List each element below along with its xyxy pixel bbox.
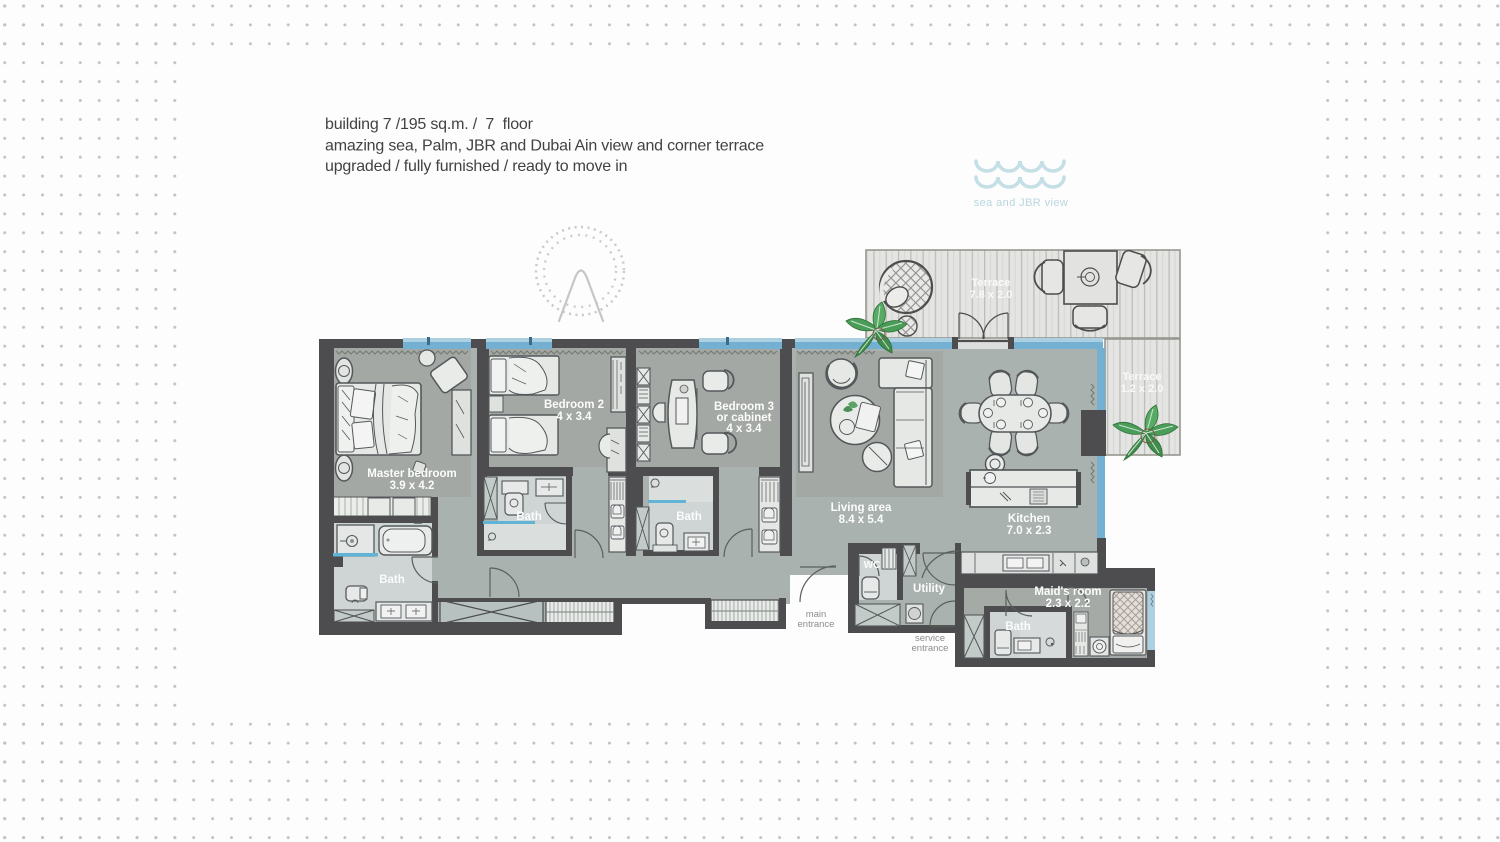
svg-text:upgraded / fully furnished / r: upgraded / fully furnished / ready to mo…	[325, 158, 627, 175]
svg-text:Terrace: Terrace	[972, 277, 1011, 289]
svg-text:Bath: Bath	[516, 511, 542, 523]
svg-text:2.3 x 2.2: 2.3 x 2.2	[1046, 598, 1091, 610]
svg-text:4 x 3.4: 4 x 3.4	[726, 423, 762, 435]
svg-text:Bath: Bath	[1005, 621, 1031, 633]
svg-text:WC: WC	[864, 560, 881, 571]
svg-text:7.8 x 2.0: 7.8 x 2.0	[970, 289, 1013, 301]
svg-text:3.9 x 4.2: 3.9 x 4.2	[390, 480, 435, 492]
svg-text:entrance: entrance	[912, 643, 949, 654]
svg-text:Kitchen: Kitchen	[1008, 513, 1050, 525]
svg-text:Bath: Bath	[676, 511, 702, 523]
svg-text:1.2 x 2.0: 1.2 x 2.0	[1121, 383, 1164, 395]
svg-text:Master bedroom: Master bedroom	[367, 468, 456, 480]
svg-text:8.4 x 5.4: 8.4 x 5.4	[839, 514, 884, 526]
svg-text:Utility: Utility	[913, 583, 946, 595]
svg-text:7.0 x 2.3: 7.0 x 2.3	[1007, 525, 1052, 537]
svg-text:Living area: Living area	[831, 502, 892, 514]
svg-text:entrance: entrance	[798, 619, 835, 630]
svg-text:Bath: Bath	[379, 574, 405, 586]
svg-text:sea and JBR view: sea and JBR view	[974, 197, 1068, 209]
svg-text:building 7 /195 sq.m. / 7 fl: building 7 /195 sq.m. / 7 floor	[325, 116, 534, 133]
svg-text:Bedroom 2: Bedroom 2	[544, 399, 604, 411]
svg-text:amazing sea, Palm, JBR and Dub: amazing sea, Palm, JBR and Dubai Ain vie…	[325, 138, 764, 155]
svg-text:Terrace: Terrace	[1123, 371, 1162, 383]
svg-text:4 x 3.4: 4 x 3.4	[556, 411, 592, 423]
svg-text:Maid's room: Maid's room	[1034, 586, 1101, 598]
